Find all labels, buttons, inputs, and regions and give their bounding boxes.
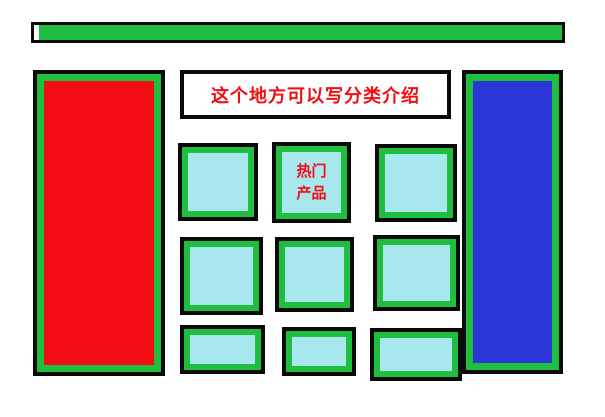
hot-product-cell: 热门 产品 [272,142,351,223]
category-intro-box: 这个地方可以写分类介绍 [180,70,451,119]
product-cell-fill [380,338,452,371]
hot-product-label: 热门 产品 [282,152,341,213]
product-cell-fill [188,153,248,211]
category-intro-text: 这个地方可以写分类介绍 [211,82,420,108]
product-cell [375,144,457,222]
hot-product-label-line1: 热门 [296,161,326,183]
product-cell-fill [292,337,346,366]
hot-product-label-line2: 产品 [296,183,326,205]
product-cell-fill [383,245,450,301]
right-banner [462,70,563,374]
left-banner [33,70,165,376]
top-bar [31,22,565,43]
right-banner-fill [473,81,552,363]
product-cell [282,327,356,376]
top-bar-notch [34,25,39,40]
product-cell [370,328,462,381]
product-cell [180,325,265,374]
product-cell-fill [190,247,253,305]
left-banner-fill [44,81,154,365]
layout-mockup-canvas: 这个地方可以写分类介绍 热门 产品 [0,0,605,417]
product-cell [275,237,354,312]
product-cell [373,235,460,311]
product-cell [180,237,263,315]
product-cell-fill [285,247,344,302]
product-cell [178,143,258,221]
product-cell-fill [385,154,447,212]
product-cell-fill [190,335,255,364]
